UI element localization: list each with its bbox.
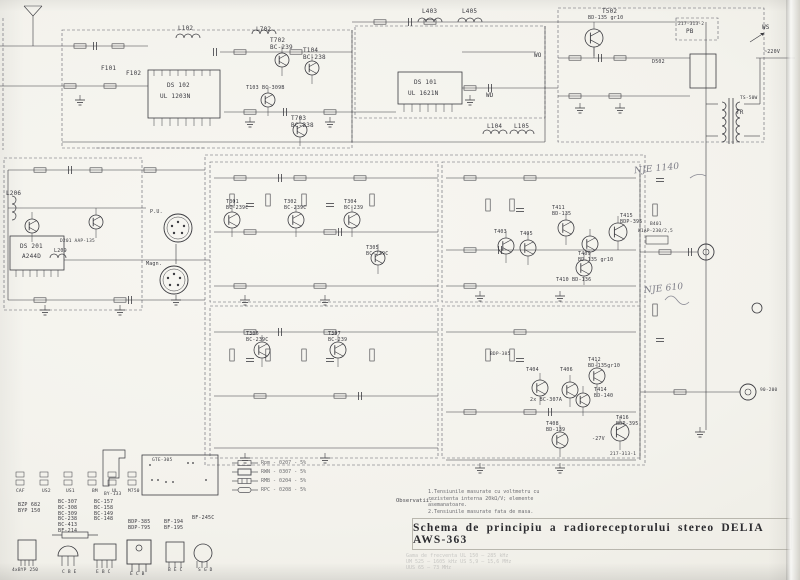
component-label: BF-194 BF-195 bbox=[164, 520, 183, 532]
legend-row: Rpm - 0207 - 5% bbox=[232, 459, 342, 467]
component-label: T307 BC-239 bbox=[328, 332, 347, 344]
component-label: T414 BD-140 bbox=[594, 388, 613, 400]
legend-label: RPC - 0208 - 5% bbox=[261, 487, 306, 493]
resistor-type-legend: Rpm - 0207 - 5% RWN - 0307 - 5% RMB - 02… bbox=[232, 459, 342, 495]
component-label: WD bbox=[486, 93, 494, 100]
component-label: T301 BC-239C bbox=[226, 200, 248, 212]
component-label: 217-313-2 bbox=[678, 22, 704, 27]
component-label: A244D bbox=[22, 254, 41, 261]
component-label: US2 bbox=[42, 489, 51, 494]
component-label: BM bbox=[92, 489, 98, 494]
component-label: F101 bbox=[101, 66, 116, 73]
component-label: T412 BD-135gr10 bbox=[588, 358, 620, 370]
component-label: T305 BC-239C bbox=[366, 246, 388, 258]
component-label: T702 BC-239 bbox=[270, 38, 293, 52]
component-label: BC-307 BC-308 BC-309 BC-238 BC-413 BF-21… bbox=[58, 500, 77, 535]
resistor-symbol-icon bbox=[232, 486, 258, 494]
resistor-symbol-icon bbox=[232, 477, 258, 485]
component-label: UL 1203N bbox=[160, 94, 191, 101]
resistor-symbol-icon bbox=[232, 468, 258, 476]
component-label: T410 BD-136 bbox=[556, 278, 591, 284]
component-label: T103 BC-309B bbox=[246, 86, 285, 92]
page-title: Schema de principiu a radioreceptorului … bbox=[413, 522, 791, 546]
component-label: L102 bbox=[178, 26, 193, 33]
component-label: D502 bbox=[652, 60, 665, 66]
component-label: TS-50W bbox=[740, 96, 757, 101]
component-label: T405 bbox=[520, 232, 533, 238]
component-label: L702 bbox=[256, 27, 271, 34]
component-label: UL 1621N bbox=[408, 91, 439, 98]
handwritten-annotation: NJE 1140 bbox=[634, 162, 680, 177]
component-label: B E C bbox=[168, 568, 183, 573]
notes-heading: Observatii: bbox=[396, 498, 432, 504]
component-label: PB bbox=[686, 29, 694, 36]
component-label: D201 AAP-135 bbox=[60, 239, 95, 244]
component-label: BDP-385 bbox=[490, 352, 510, 357]
component-label: T304 BC-239 bbox=[344, 200, 363, 212]
component-label: T703 BC-238 bbox=[291, 116, 314, 130]
legend-label: RWN - 0307 - 5% bbox=[261, 469, 306, 475]
component-label: TR bbox=[736, 110, 744, 117]
component-label: US1 bbox=[66, 489, 75, 494]
component-label: T406 bbox=[560, 368, 573, 374]
component-label: BF-245C bbox=[192, 516, 214, 522]
component-label: L405 bbox=[462, 9, 477, 16]
component-label: T403 bbox=[494, 230, 507, 236]
legend-label: RMB - 0204 - 5% bbox=[261, 478, 306, 484]
component-label: L105 bbox=[514, 124, 529, 131]
component-label: T409 BD-135 gr10 bbox=[578, 252, 613, 264]
component-label: 217-313-1 bbox=[610, 452, 636, 457]
component-label: GTE-305 bbox=[152, 458, 172, 463]
note-line-1: 1.Tensiunile masurate cu voltmetru cu re… bbox=[428, 489, 539, 508]
component-label: ~220V bbox=[764, 50, 780, 56]
note-line-2: 2.Tensiunile masurate fata de masa. bbox=[428, 509, 533, 515]
component-label: 2x BC-307A bbox=[530, 398, 562, 404]
component-label: BDP-385 BDP-795 bbox=[128, 520, 150, 532]
component-label: M750 bbox=[128, 489, 140, 494]
component-label: DS 101 bbox=[414, 80, 437, 87]
component-label: CAF bbox=[16, 489, 25, 494]
component-label: BC-157 BC-158 BC-149 BC-148 bbox=[94, 500, 113, 523]
legend-row: RWN - 0307 - 5% bbox=[232, 468, 342, 476]
component-label: BY-133 bbox=[104, 492, 121, 497]
component-label: DS 102 bbox=[167, 83, 190, 90]
component-label: T415 BDP-395 bbox=[620, 214, 642, 226]
component-label: T416 BDP-395 bbox=[616, 416, 638, 428]
component-label: WS bbox=[762, 25, 770, 32]
component-label: P.U. bbox=[150, 210, 163, 216]
legend-label: Rpm - 0207 - 5% bbox=[261, 460, 306, 466]
component-label: L209 bbox=[54, 249, 67, 255]
component-label: DS 201 bbox=[20, 244, 43, 251]
component-label: T408 BD-139 bbox=[546, 422, 565, 434]
component-label: T411 BD-135 bbox=[552, 206, 571, 218]
component-label: W1AP-230/2,5 bbox=[638, 229, 673, 234]
schematic-title-box: Schema de principiu a radioreceptorului … bbox=[412, 518, 792, 550]
component-label: 90-200 bbox=[760, 388, 777, 393]
component-label: L403 bbox=[422, 9, 437, 16]
component-label: E B C bbox=[96, 570, 111, 575]
component-label: T404 bbox=[526, 368, 539, 374]
component-label: B401 bbox=[650, 222, 662, 227]
legend-row: RPC - 0208 - 5% bbox=[232, 486, 342, 494]
handwritten-annotation: NJE 610 bbox=[644, 282, 684, 296]
component-label: -27V bbox=[592, 437, 605, 443]
component-label: L104 bbox=[487, 124, 502, 131]
component-label: T104 BC-238 bbox=[303, 48, 326, 62]
component-label: 4xBYP 250 bbox=[12, 568, 38, 573]
component-label: T302 BC-239C bbox=[284, 200, 306, 212]
component-label: Magn. bbox=[146, 262, 162, 268]
component-label: WO bbox=[534, 53, 542, 60]
resistor-symbol-icon bbox=[232, 459, 258, 467]
notes-body: 1.Tensiunile masurate cu voltmetru cu re… bbox=[428, 489, 540, 515]
component-label: E C B bbox=[130, 572, 145, 577]
component-label: L206 bbox=[6, 191, 21, 198]
legend-row: RMB - 0204 - 5% bbox=[232, 477, 342, 485]
scanned-schematic-page: L102F101F102DS 102UL 1203NL702T702 BC-23… bbox=[0, 0, 800, 580]
observations-notes: Observatii: 1.Tensiunile masurate cu vol… bbox=[396, 487, 546, 506]
component-label: S G D bbox=[198, 568, 213, 573]
component-label: BD-135 gr10 bbox=[588, 16, 623, 22]
component-label: F102 bbox=[126, 71, 141, 78]
component-label: C B E bbox=[62, 570, 77, 575]
component-label: BZP 682 BYP 150 bbox=[18, 503, 40, 515]
frequency-range-table: Gama de frecventa UL 150 – 285 kHz UM 52… bbox=[406, 553, 516, 571]
component-label: T306 BC-239C bbox=[246, 332, 268, 344]
